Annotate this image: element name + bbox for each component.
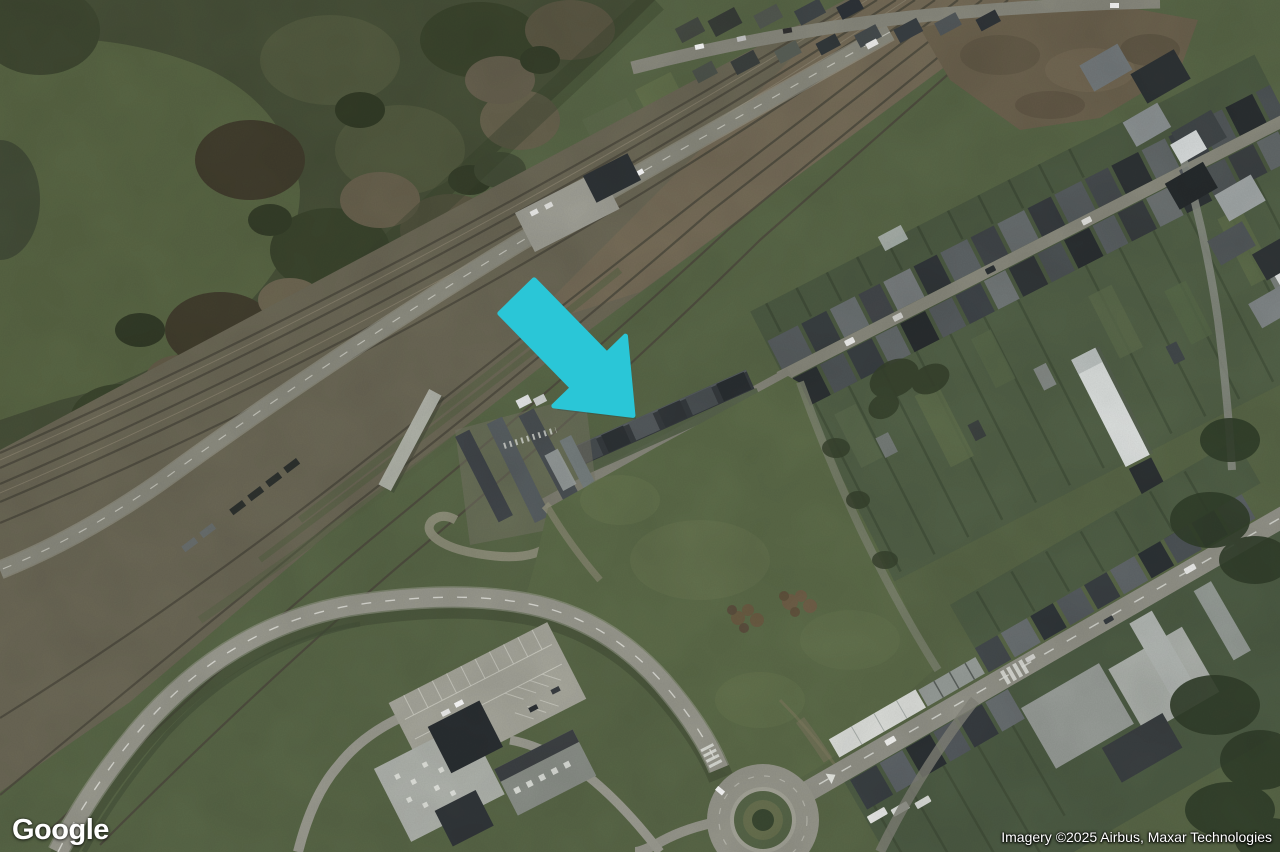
map-viewport[interactable]: Google Imagery ©2025 Airbus, Maxar Techn…	[0, 0, 1280, 852]
imagery-attribution: Imagery ©2025 Airbus, Maxar Technologies	[1001, 829, 1272, 845]
satellite-imagery	[0, 0, 1280, 852]
google-logo[interactable]: Google	[12, 814, 109, 847]
image-noise	[0, 0, 1280, 852]
